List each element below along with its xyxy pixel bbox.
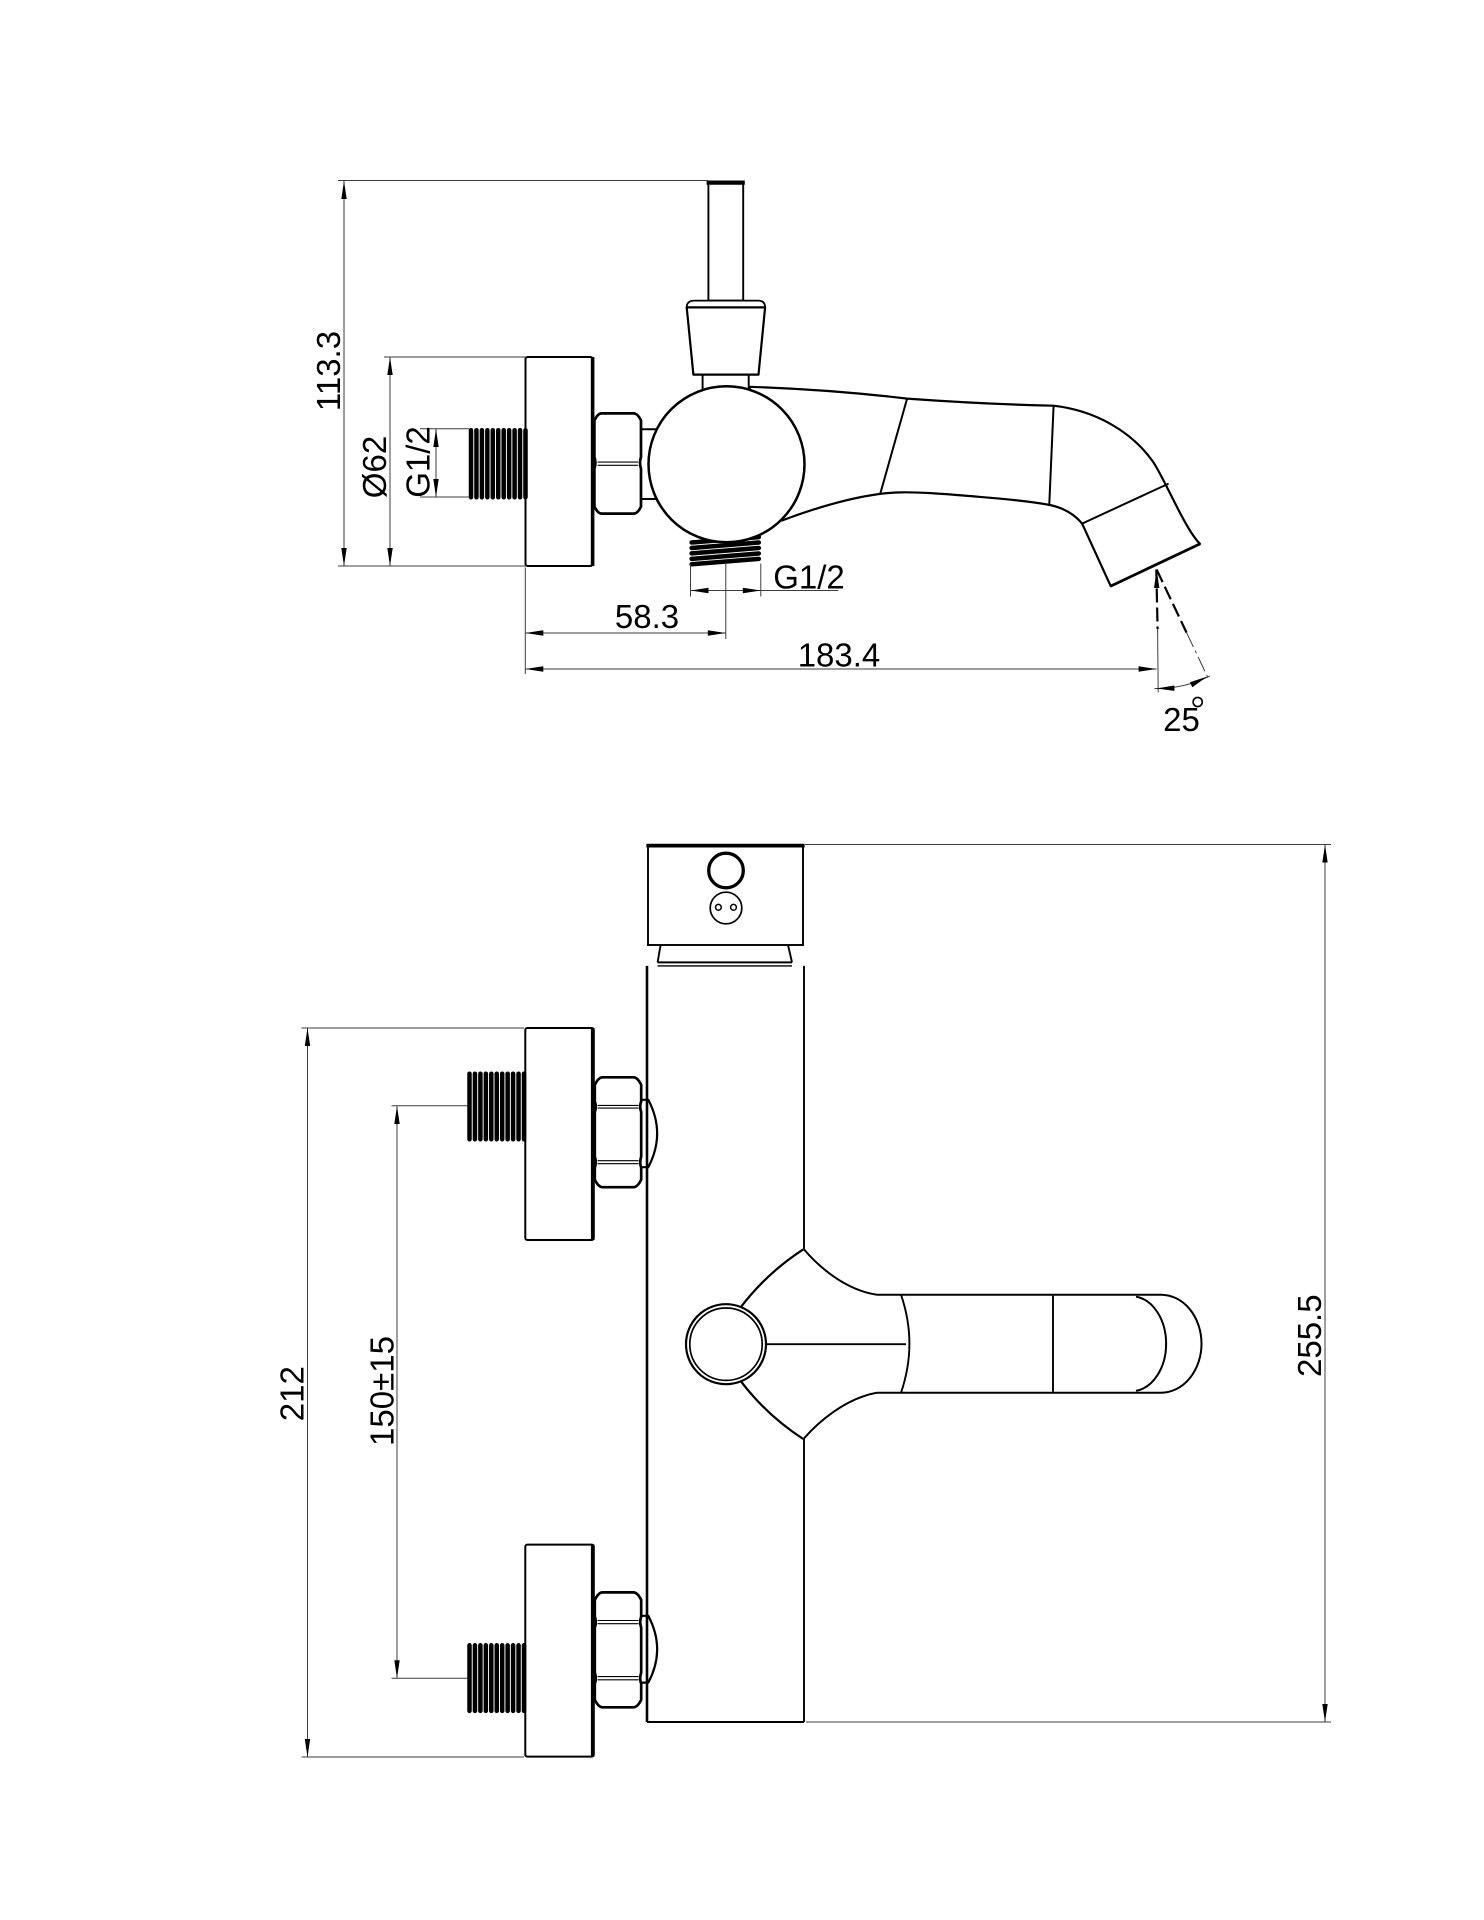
svg-text:G1/2: G1/2 [773,559,845,596]
svg-text:G1/2: G1/2 [400,426,437,498]
svg-text:255.5: 255.5 [1291,1294,1328,1377]
svg-text:150±15: 150±15 [364,1336,401,1446]
svg-text:25: 25 [1163,701,1200,738]
svg-text:Ø62: Ø62 [356,436,393,498]
svg-text:212: 212 [274,1366,311,1421]
svg-text:58.3: 58.3 [615,598,679,635]
svg-text:183.4: 183.4 [798,637,881,674]
svg-text:113.3: 113.3 [310,331,347,411]
